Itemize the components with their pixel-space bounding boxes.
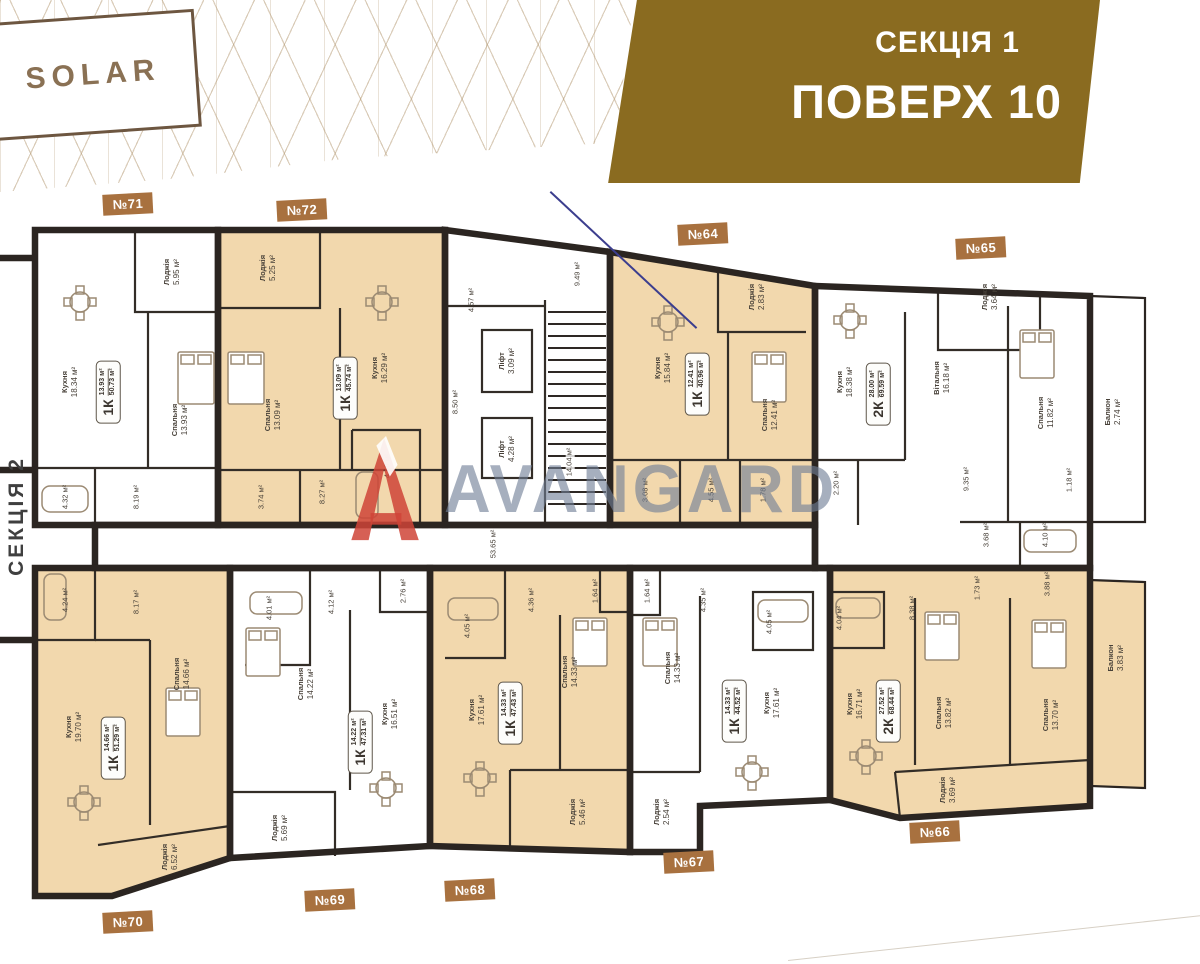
area-label: 1.73 м² — [974, 576, 983, 600]
apartment-number-badge: №67 — [663, 850, 714, 874]
room-label: Кухня19.70 м² — [65, 712, 83, 742]
room-label: Спальня14.22 м² — [297, 668, 315, 700]
area-label: 4.36 м² — [528, 588, 537, 612]
section-label: СЕКЦІЯ 1 — [875, 26, 1020, 60]
stairs-area-label: 14.04 м² — [566, 448, 575, 477]
room-label: Спальня13.82 м² — [935, 697, 953, 729]
lift-label: Ліфт4.28 м² — [498, 436, 516, 462]
room-label: Лоджія5.95 м² — [163, 259, 181, 285]
area-label: 3.68 м² — [983, 523, 992, 547]
area-label: 1.64 м² — [592, 579, 601, 603]
room-label: Спальня14.33 м² — [561, 656, 579, 688]
area-label: 1.64 м² — [644, 579, 653, 603]
apartment-number: №65 — [965, 240, 996, 257]
area-label: 9.35 м² — [963, 467, 972, 491]
apartment-type-badge: 1К14.22 м²47.31 м² — [348, 710, 373, 773]
apartment-type-badge: 2К27.52 м²68.44 м² — [876, 679, 901, 742]
apartment-number-badge: №64 — [677, 222, 728, 246]
area-label: 4.05 м² — [464, 614, 473, 638]
area-label: 8.38 м² — [909, 596, 918, 620]
apartment-type-badge: 1К14.66 м²51.29 м² — [101, 716, 126, 779]
apartment-number-badge: №66 — [909, 820, 960, 844]
room-label: Вітальня16.18 м² — [933, 361, 951, 395]
room-label: Балкон3.83 м² — [1107, 644, 1125, 671]
floor-label: ПОВЕРХ 10 — [791, 74, 1062, 129]
apartment-number: №72 — [286, 202, 317, 219]
area-label: 4.24 м² — [62, 588, 71, 612]
area-label: 8.19 м² — [133, 485, 142, 509]
room-label: Спальня11.82 м² — [1037, 397, 1055, 429]
developer-logo: SOLAR — [0, 9, 202, 141]
apartment-type-badge: 2К28.00 м²69.59 м² — [866, 362, 891, 425]
room-label: Лоджія2.54 м² — [653, 799, 671, 825]
area-label: 2.76 м² — [400, 579, 409, 603]
area-label: 8.17 м² — [133, 590, 142, 614]
corridor-area-label: 53.65 м² — [490, 530, 499, 559]
apartment-number-badge: №68 — [444, 878, 495, 902]
room-label: Спальня14.66 м² — [173, 658, 191, 690]
apartment-number-badge: №72 — [276, 198, 327, 222]
apartment-number: №69 — [314, 892, 345, 909]
apartment-number: №70 — [112, 914, 143, 931]
room-label: Балкон2.74 м² — [1104, 398, 1122, 425]
area-label: 1.78 м² — [760, 478, 769, 502]
area-label: 4.57 м² — [468, 288, 477, 312]
area-label: 8.50 м² — [452, 390, 461, 414]
area-label: 4.05 м² — [766, 610, 775, 634]
area-label: 4.04 м² — [836, 606, 845, 630]
apartment-type-badge: 1К14.33 м²44.52 м² — [722, 679, 747, 742]
floor-plan-page: SOLAR СЕКЦІЯ 1 ПОВЕРХ 10 — [0, 0, 1200, 964]
apartment-type-badge: 1К14.33 м²47.43 м² — [498, 681, 523, 744]
apartment-number: №66 — [919, 824, 950, 841]
area-label: 1.18 м² — [1066, 468, 1075, 492]
apartment-number: №67 — [673, 854, 704, 871]
room-label: Лоджія5.69 м² — [271, 815, 289, 841]
lift-label: Ліфт3.09 м² — [498, 348, 516, 374]
apartment-number-badge: №65 — [955, 236, 1006, 260]
area-label: 3.88 м² — [1044, 572, 1053, 596]
area-label: 9.49 м² — [574, 262, 583, 286]
apartment-type-badge: 1К13.93 м²50.73 м² — [96, 360, 121, 423]
room-label: Спальня14.33 м² — [664, 652, 682, 684]
room-label: Лоджія5.25 м² — [259, 255, 277, 281]
room-label: Спальня12.41 м² — [761, 399, 779, 431]
area-label: 4.01 м² — [266, 596, 275, 620]
room-label: Лоджія6.52 м² — [161, 844, 179, 870]
room-label: Лоджія5.46 м² — [569, 799, 587, 825]
room-label: Кухня16.51 м² — [381, 699, 399, 729]
apartment-number-badge: №71 — [102, 192, 153, 216]
room-label: Лоджія3.69 м² — [939, 777, 957, 803]
developer-logo-text: SOLAR — [24, 53, 161, 96]
apartment-number-badge: №70 — [102, 910, 153, 934]
room-label: Кухня18.38 м² — [836, 367, 854, 397]
apartment-number: №71 — [112, 196, 143, 213]
apartment-number-badge: №69 — [304, 888, 355, 912]
area-label: 4.55 м² — [708, 478, 717, 502]
apartment-type-badge: 1К13.09 м²45.74 м² — [333, 356, 358, 419]
side-section-label: СЕКЦІЯ 2 — [5, 456, 29, 576]
area-label: 4.10 м² — [1042, 523, 1051, 547]
apartment-number: №64 — [687, 226, 718, 243]
area-label: 2.20 м² — [833, 471, 842, 495]
room-label: Лоджія2.83 м² — [748, 284, 766, 310]
room-label: Кухня16.71 м² — [846, 689, 864, 719]
area-label: 4.12 м² — [328, 590, 337, 614]
area-label: 4.10 м² — [384, 454, 393, 478]
apartment-type-badge: 1К12.41 м²40.96 м² — [685, 352, 710, 415]
room-label: Лоджія3.64 м² — [981, 284, 999, 310]
area-label: 3.74 м² — [258, 485, 267, 509]
room-label: Кухня18.34 м² — [61, 367, 79, 397]
room-label: Спальня13.93 м² — [171, 404, 189, 436]
room-label: Кухня17.61 м² — [468, 695, 486, 725]
room-label: Кухня15.84 м² — [654, 353, 672, 383]
room-label: Спальня13.09 м² — [264, 399, 282, 431]
section-floor-banner: СЕКЦІЯ 1 ПОВЕРХ 10 — [595, 0, 1100, 183]
room-label: Спальня13.70 м² — [1042, 699, 1060, 731]
area-label: 3.08 м² — [642, 478, 651, 502]
area-label: 4.32 м² — [62, 485, 71, 509]
room-label: Кухня17.61 м² — [763, 688, 781, 718]
area-label: 8.27 м² — [319, 480, 328, 504]
area-label: 4.35 м² — [700, 588, 709, 612]
room-label: Кухня16.29 м² — [371, 353, 389, 383]
apartment-number: №68 — [454, 882, 485, 899]
